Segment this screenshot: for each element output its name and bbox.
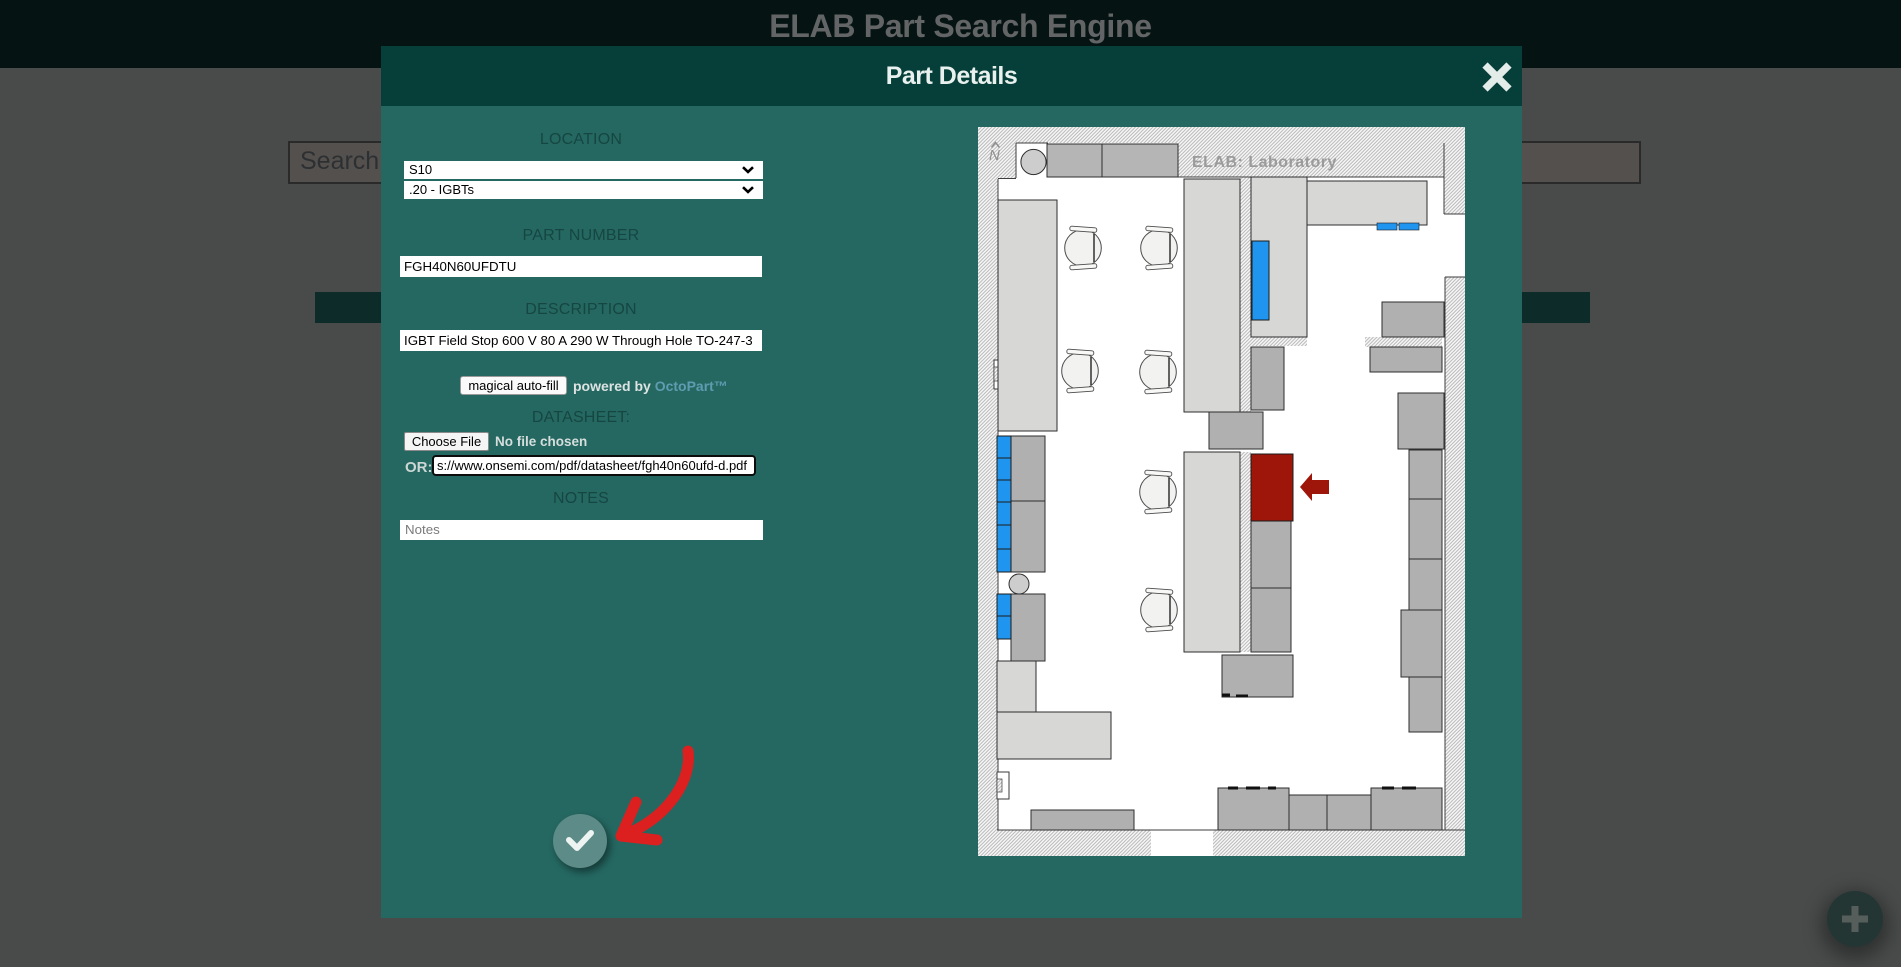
- svg-text:N: N: [989, 147, 1000, 164]
- svg-text:ELAB: Laboratory: ELAB: Laboratory: [1192, 154, 1337, 171]
